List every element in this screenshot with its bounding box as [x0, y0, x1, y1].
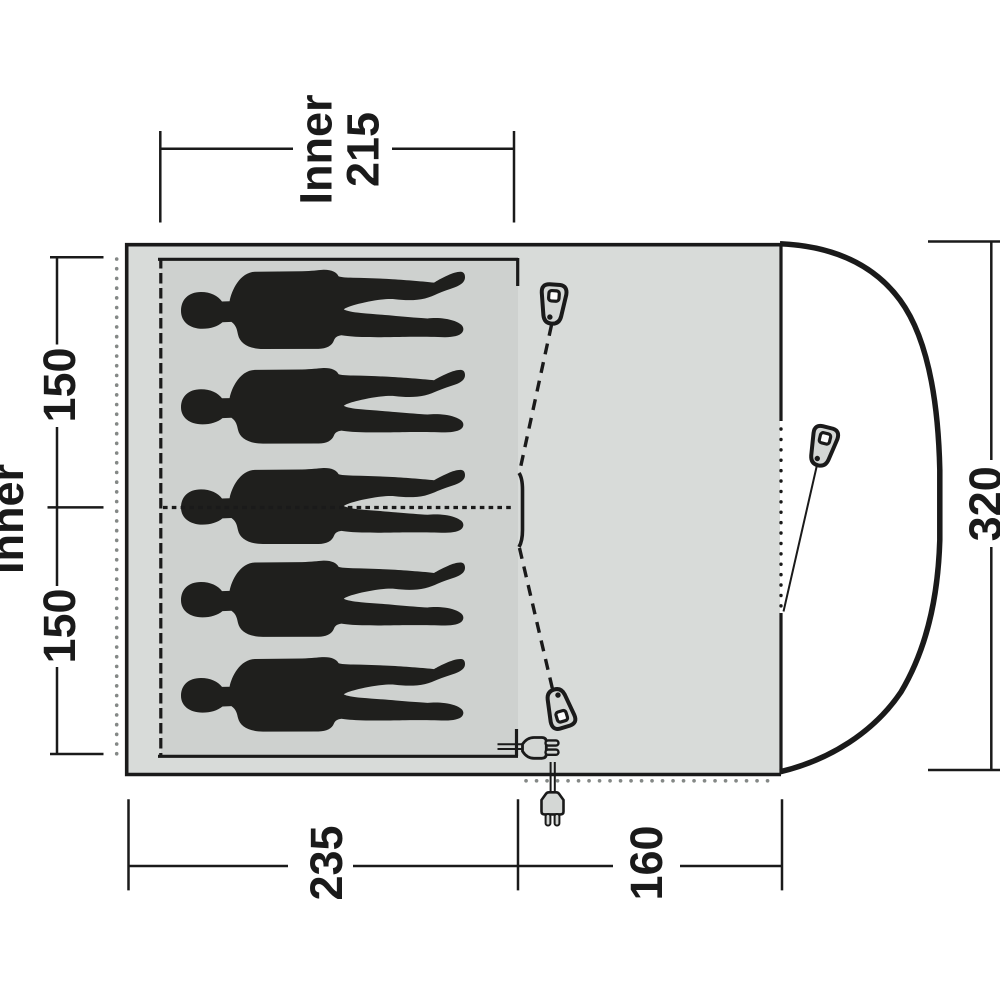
svg-text:235: 235 [301, 825, 352, 900]
svg-text:320: 320 [960, 466, 1000, 541]
svg-text:150: 150 [34, 588, 85, 663]
svg-text:150: 150 [34, 347, 85, 422]
svg-text:Inner: Inner [0, 464, 33, 574]
svg-text:Inner215: Inner215 [291, 94, 389, 204]
svg-text:160: 160 [621, 825, 672, 900]
